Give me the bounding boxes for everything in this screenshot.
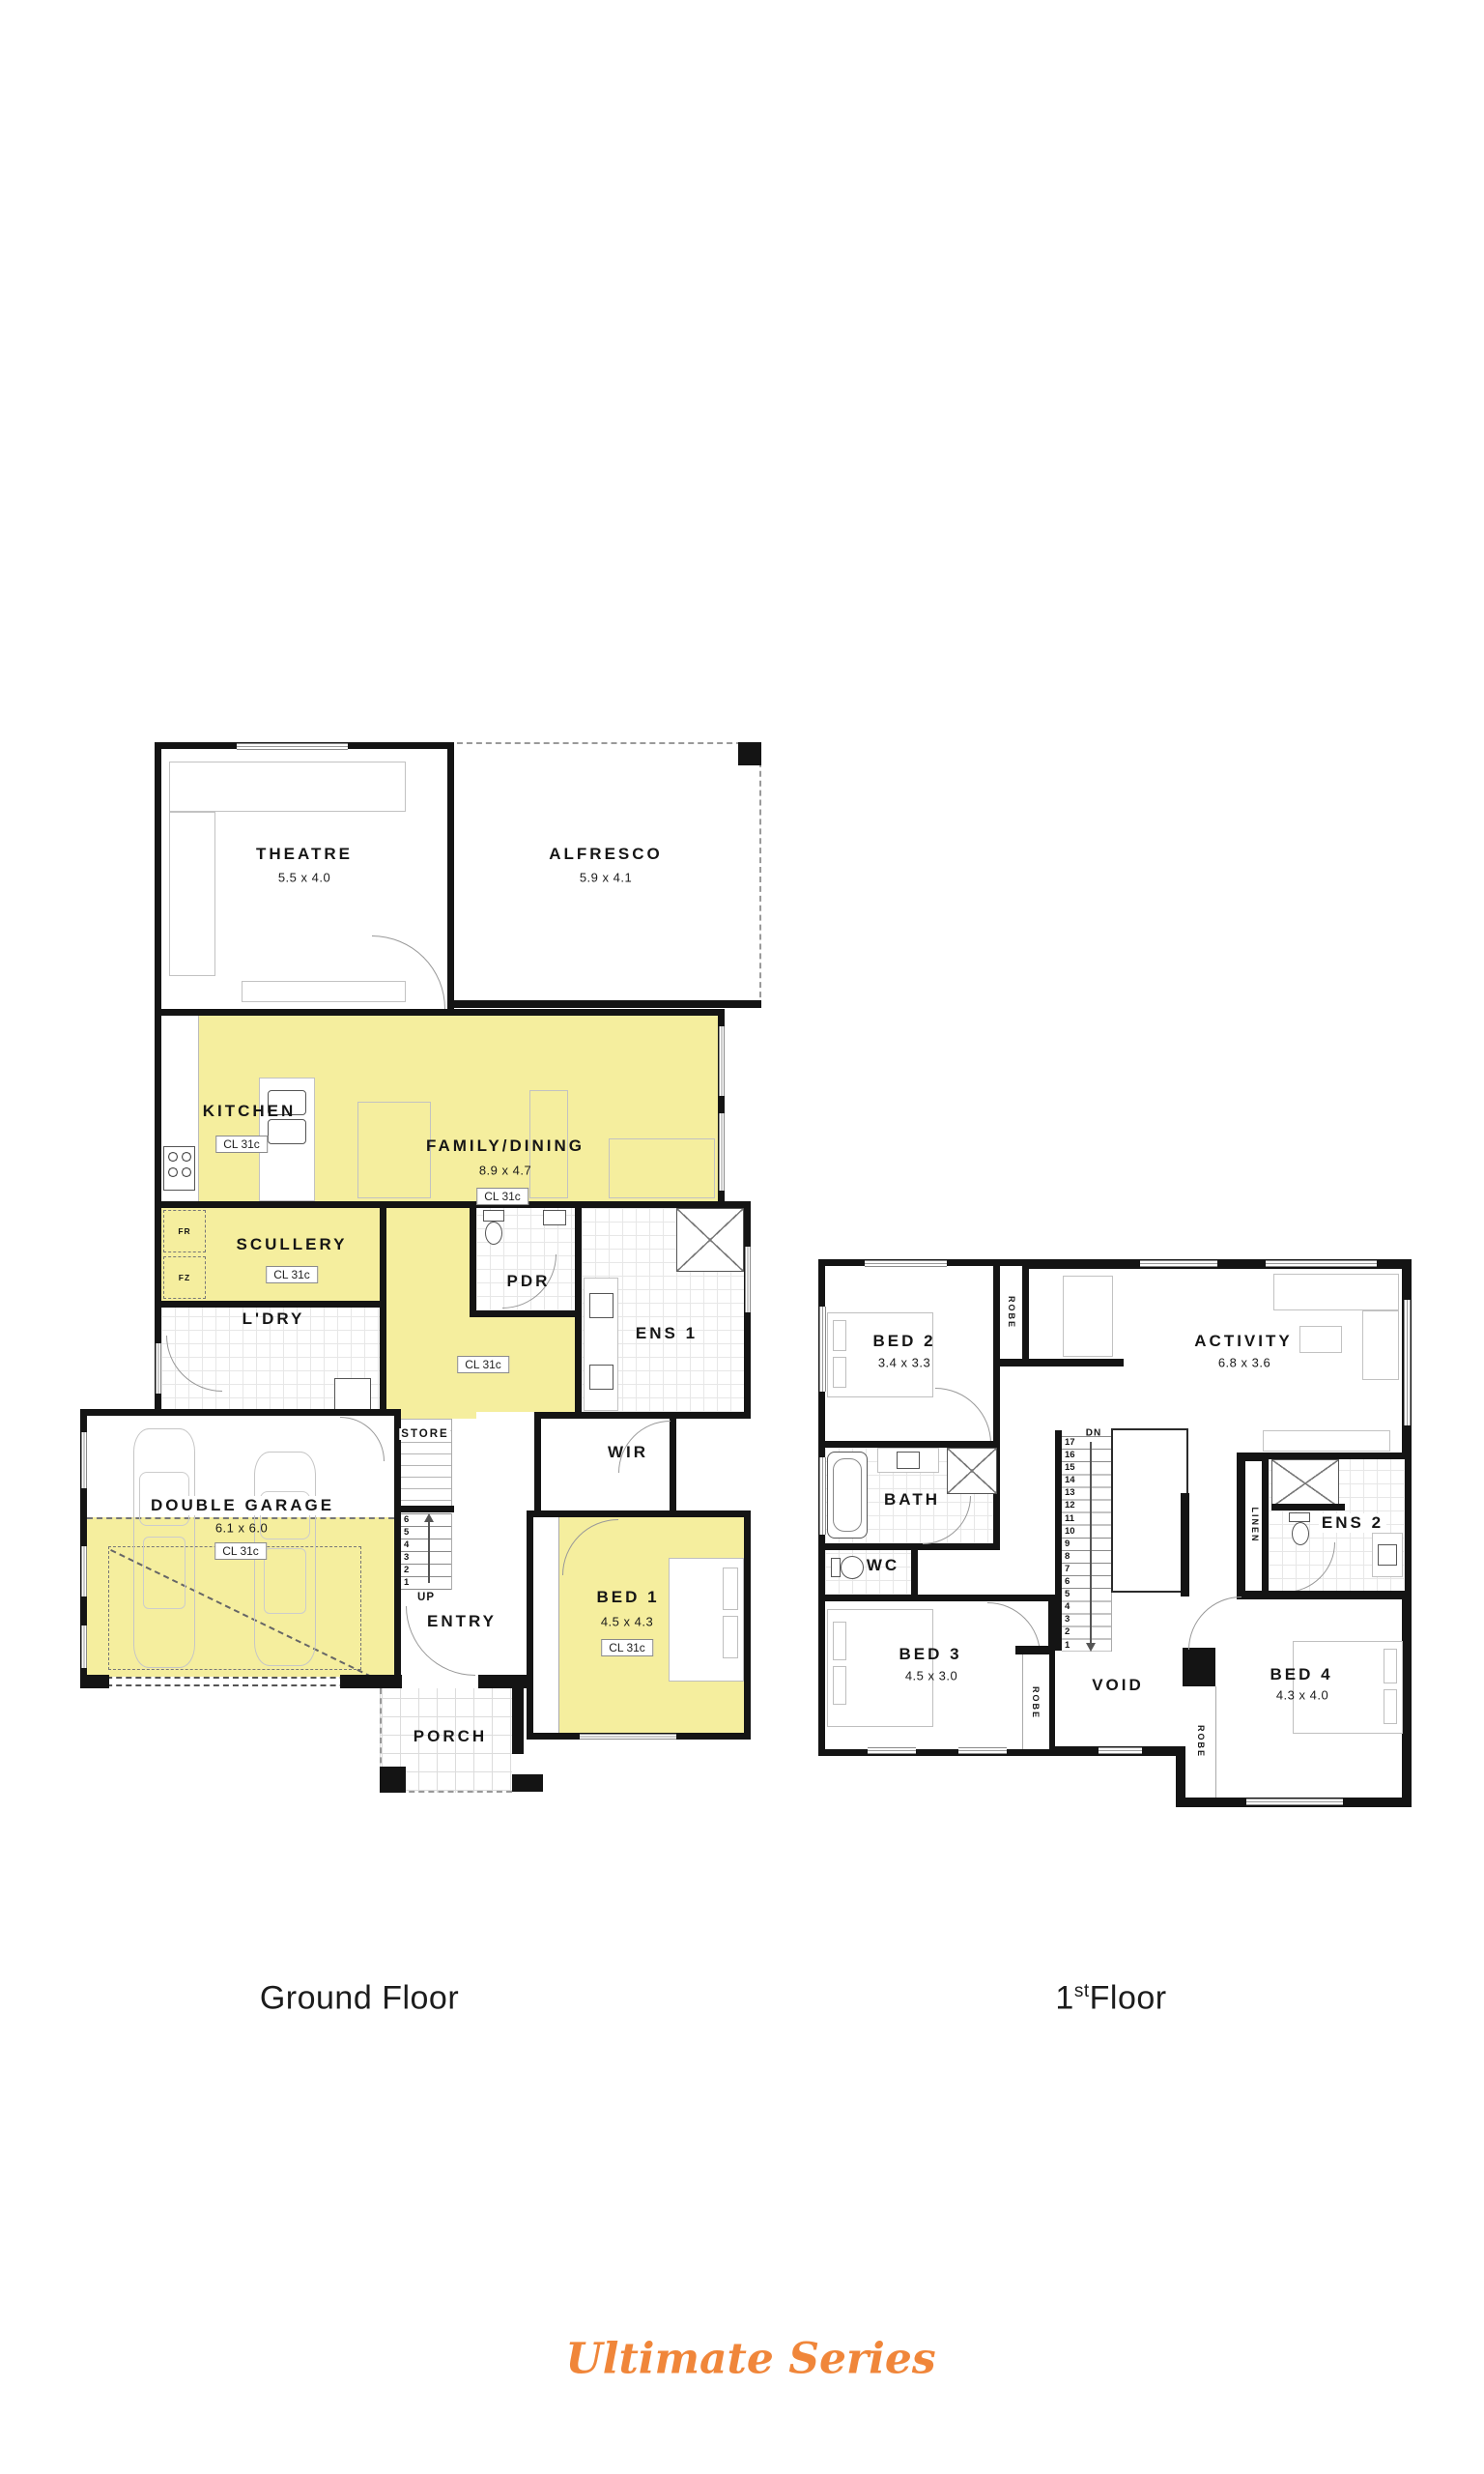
bed1-dim: 4.5 x 4.3 xyxy=(601,1615,653,1629)
bed2-label: BED 2 xyxy=(872,1332,935,1351)
brand-series-logo: Ultimate Series xyxy=(565,2335,935,2384)
stairs-gf-numbers: 654321 xyxy=(404,1513,409,1589)
theatre-label: THEATRE xyxy=(256,845,353,864)
dining-table xyxy=(357,1102,431,1198)
garage-window-2 xyxy=(81,1546,87,1597)
bath-basin xyxy=(897,1452,920,1469)
ens2-shower-wall xyxy=(1271,1504,1345,1510)
activity-table xyxy=(1299,1326,1342,1353)
scullery-label: SCULLERY xyxy=(237,1235,348,1254)
bed3-label: BED 3 xyxy=(899,1645,961,1664)
kitchen-cl-badge: CL 31c xyxy=(215,1136,268,1153)
family-rug xyxy=(609,1138,715,1198)
bath-window xyxy=(819,1457,826,1535)
linen-left-wall xyxy=(1237,1453,1245,1597)
theatre-sofa-side xyxy=(169,812,215,976)
ff-top-window-3 xyxy=(1266,1260,1377,1267)
first-floor-title-rest: Floor xyxy=(1090,1980,1167,2017)
family-window-1 xyxy=(719,1026,725,1096)
activity-desk xyxy=(1063,1276,1113,1357)
ens1-shower xyxy=(676,1208,744,1272)
ens1-window xyxy=(745,1247,751,1312)
wc-toilet-bowl xyxy=(841,1556,864,1579)
ens1-label: ENS 1 xyxy=(636,1324,698,1343)
front-wall-right xyxy=(478,1675,527,1688)
ens1-basin-2 xyxy=(589,1365,614,1390)
stairs-mid-wall xyxy=(394,1506,454,1512)
bed4-dim: 4.3 x 4.0 xyxy=(1276,1688,1328,1703)
bed1-window xyxy=(580,1734,676,1740)
bed4-pillow xyxy=(1384,1649,1397,1683)
garage-label: DOUBLE GARAGE xyxy=(147,1496,338,1515)
ff-top-window-1 xyxy=(865,1260,947,1267)
bed1-pillow-2 xyxy=(723,1616,738,1658)
bed4-robe-label: ROBE xyxy=(1196,1725,1206,1758)
ff-stairs-numbers: 1716151413121110987654321 xyxy=(1065,1436,1075,1652)
bed2-window xyxy=(819,1307,826,1392)
garage-door-stub-left xyxy=(80,1675,109,1688)
stairs-gf-arrow-head xyxy=(424,1513,434,1522)
bed4-right-window xyxy=(1404,1396,1411,1425)
cooktop-icon xyxy=(163,1146,195,1191)
bed3-pillow xyxy=(833,1622,846,1660)
bed3-window-1 xyxy=(868,1747,916,1754)
ff-stairs-left-wall xyxy=(1055,1430,1062,1651)
theatre-window xyxy=(237,743,348,750)
stair-void-rail xyxy=(1111,1428,1188,1593)
activity-bench xyxy=(1263,1430,1390,1452)
ens2-bottom-wall xyxy=(1237,1591,1412,1599)
ens2-toilet-tank xyxy=(1289,1512,1310,1522)
floorplan-page: 654321 THEATRE 5.5 x 4.0 ALFRESCO 5.9 x … xyxy=(0,0,1484,2474)
entry-label: ENTRY xyxy=(427,1612,497,1631)
alfresco-corner-post xyxy=(738,742,761,765)
garage-window-1 xyxy=(81,1432,87,1488)
store-label: STORE xyxy=(399,1428,450,1440)
laundry-label: L'DRY xyxy=(243,1309,305,1329)
porch-label: PORCH xyxy=(414,1727,487,1746)
laundry-trough xyxy=(334,1378,371,1411)
bed3-pillow-2 xyxy=(833,1666,846,1705)
ens2-basin xyxy=(1378,1544,1397,1566)
hall-cl-badge: CL 31c xyxy=(457,1356,509,1373)
family-label: FAMILY/DINING xyxy=(426,1136,585,1156)
garage-window-3 xyxy=(81,1625,87,1668)
bed3-robe-label: ROBE xyxy=(1031,1686,1041,1719)
theatre-dim: 5.5 x 4.0 xyxy=(278,871,330,885)
garage-cl-badge: CL 31c xyxy=(214,1542,267,1560)
wc-label: WC xyxy=(867,1556,899,1575)
laundry-window xyxy=(156,1343,161,1394)
bed2-pillow-2 xyxy=(833,1357,846,1388)
ground-floor-title: Ground Floor xyxy=(260,1980,459,2018)
ff-stairs-arrow-head xyxy=(1086,1643,1096,1652)
bed2-dim: 3.4 x 3.3 xyxy=(878,1356,930,1370)
ff-top-window-2 xyxy=(1140,1260,1217,1267)
void-label: VOID xyxy=(1092,1676,1144,1695)
bed3-robe-nib xyxy=(1015,1646,1055,1654)
alfresco-dim: 5.9 x 4.1 xyxy=(580,871,632,885)
bathtub xyxy=(827,1452,868,1539)
front-wall-left xyxy=(340,1675,402,1688)
fridge-label: FR xyxy=(178,1226,190,1236)
stairs-up-label: UP xyxy=(417,1592,435,1603)
family-cl-badge: CL 31c xyxy=(476,1188,528,1205)
pdr-label: PDR xyxy=(507,1272,551,1291)
activity-label: ACTIVITY xyxy=(1194,1332,1292,1351)
porch-right-wall xyxy=(512,1688,524,1754)
first-floor-title-sup: st xyxy=(1074,1981,1090,2001)
freezer-label: FZ xyxy=(179,1273,190,1282)
porch-right-stub xyxy=(512,1774,543,1792)
theatre-sofa xyxy=(169,762,406,812)
scullery-cl-badge: CL 31c xyxy=(266,1266,318,1283)
activity-sofa-2 xyxy=(1362,1310,1399,1380)
kitchen-sink2 xyxy=(268,1119,306,1144)
bed4-pillow-2 xyxy=(1384,1689,1397,1724)
activity-sofa xyxy=(1273,1274,1399,1310)
ens2-shower xyxy=(1271,1459,1339,1508)
first-floor-title: 1stFloor xyxy=(1055,1980,1166,2018)
car-1 xyxy=(133,1428,195,1668)
activity-dim: 6.8 x 3.6 xyxy=(1218,1356,1270,1370)
ens1-basin-1 xyxy=(589,1293,614,1318)
void-window xyxy=(1099,1747,1142,1754)
bed2-robe-label: ROBE xyxy=(1007,1296,1016,1329)
ens2-label: ENS 2 xyxy=(1319,1513,1386,1533)
stairs-dn-label: DN xyxy=(1086,1428,1101,1439)
bed3-window-2 xyxy=(958,1747,1007,1754)
ff-stairs-arrow-line xyxy=(1090,1442,1092,1643)
bed3-dim: 4.5 x 3.0 xyxy=(905,1669,957,1683)
bed2-pillow xyxy=(833,1320,846,1351)
family-dim: 8.9 x 4.7 xyxy=(479,1164,531,1178)
bed4-robe-nib xyxy=(1183,1648,1215,1686)
bed1-pillow xyxy=(723,1568,738,1610)
pdr-toilet-tank xyxy=(483,1210,504,1222)
wc-toilet-tank xyxy=(831,1558,841,1577)
wir-label: WIR xyxy=(608,1443,648,1462)
bed1-label: BED 1 xyxy=(596,1588,659,1607)
bed1-robe-strip xyxy=(533,1517,559,1733)
bed4-door-arc xyxy=(1188,1597,1241,1650)
pdr-toilet-bowl xyxy=(485,1222,502,1245)
linen-label: LINEN xyxy=(1250,1508,1260,1543)
pdr-basin xyxy=(543,1210,566,1225)
alfresco-label: ALFRESCO xyxy=(549,845,663,864)
family-window-2 xyxy=(719,1113,725,1191)
bath-shower xyxy=(947,1448,997,1494)
activity-lower-wall xyxy=(993,1359,1124,1366)
stairs-gf-arrow-line xyxy=(428,1519,430,1583)
bed1-cl-badge: CL 31c xyxy=(601,1639,653,1656)
porch-pillar xyxy=(380,1767,406,1793)
first-floor-title-number: 1 xyxy=(1055,1980,1073,2017)
bath-label: BATH xyxy=(884,1490,940,1510)
kitchen-label: KITCHEN xyxy=(203,1102,297,1121)
hall-highlight xyxy=(386,1208,476,1419)
garage-dim: 6.1 x 6.0 xyxy=(215,1521,268,1536)
alfresco-bottom-wall xyxy=(447,1000,761,1008)
bed4-label: BED 4 xyxy=(1270,1665,1332,1684)
void-side-wall xyxy=(1181,1493,1189,1597)
bed4-window xyxy=(1246,1798,1343,1805)
